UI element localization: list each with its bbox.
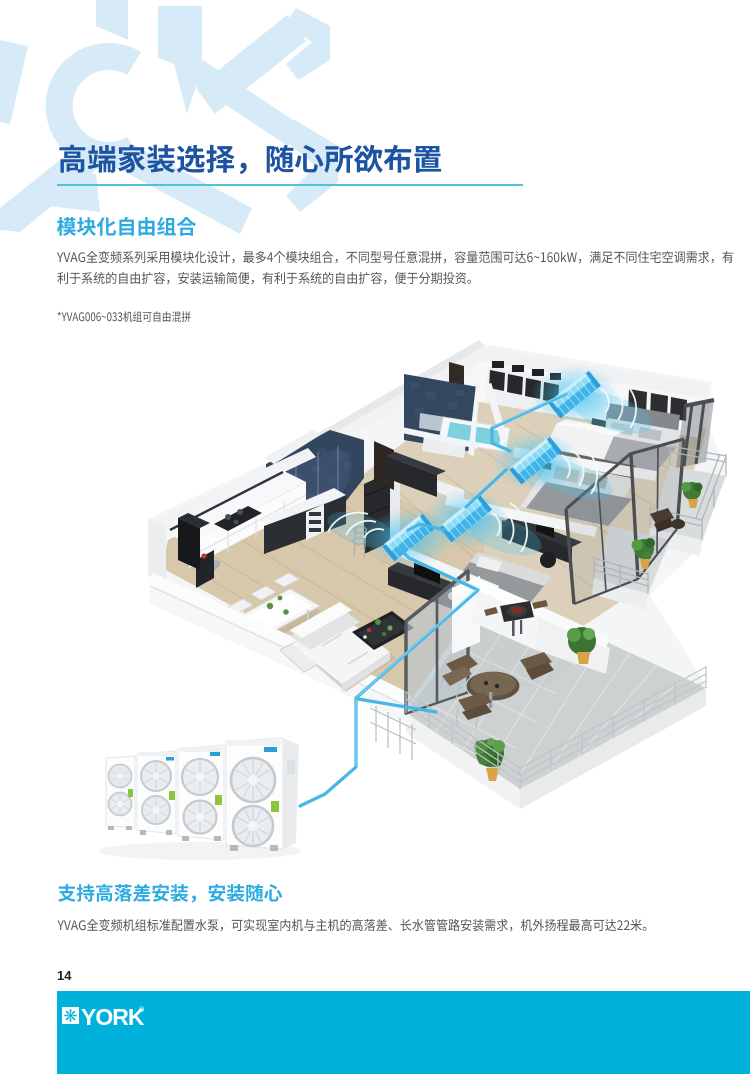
svg-text:YORK: YORK (81, 1004, 145, 1030)
svg-text:®: ® (139, 1006, 145, 1014)
